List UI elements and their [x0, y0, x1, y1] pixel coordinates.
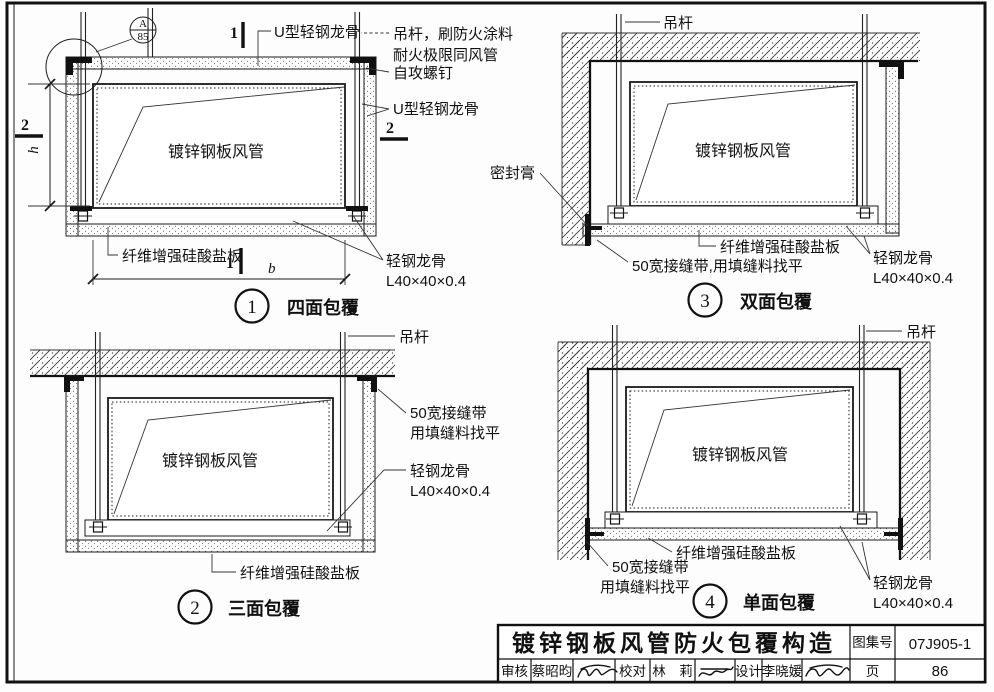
atlas-number-value: 07J905-1: [909, 636, 972, 653]
caption-text: 双面包覆: [740, 291, 813, 312]
label-sealant: 密封膏: [490, 165, 535, 182]
page-label: 页: [866, 664, 880, 679]
caption-number: 3: [700, 291, 710, 312]
sheet-svg: A 85 1 1 2 2 h b: [0, 0, 994, 692]
label-tape-line2: 用填缝料找平: [410, 425, 500, 442]
label-keel-line2: L40×40×0.4: [386, 273, 466, 290]
dimension-h: h: [26, 79, 90, 211]
drawing-sheet: A 85 1 1 2 2 h b: [0, 0, 994, 692]
detail-3-two-side-covering: 吊杆 密封膏 镀锌钢板风管 纤维增强硅酸盐板 50宽接缝带,用填缝料找平 轻钢龙…: [490, 14, 953, 317]
section-mark-2-right: 2: [386, 120, 394, 137]
label-duct: 镀锌钢板风管: [695, 142, 791, 160]
label-hanger: 吊杆: [906, 324, 936, 341]
section-mark-1-top: 1: [230, 25, 238, 42]
caption-number: 1: [247, 297, 257, 318]
section-mark-2-left: 2: [21, 117, 29, 134]
label-duct: 镀锌钢板风管: [162, 452, 258, 470]
label-board: 纤维增强硅酸盐板: [122, 247, 242, 265]
label-top-keel: U型轻钢龙骨: [274, 24, 360, 41]
label-tape-line2: 用填缝料找平: [600, 579, 690, 596]
caption: 4 单面包覆: [694, 585, 816, 618]
sheet-title: 镀锌钢板风管防火包覆构造: [512, 630, 836, 656]
design-label: 设计: [735, 664, 762, 679]
label-keel-line1: 轻钢龙骨: [386, 253, 446, 270]
caption-text: 单面包覆: [743, 592, 816, 613]
dim-b-label: b: [268, 261, 276, 277]
dim-h-label: h: [26, 146, 42, 154]
label-tape: 50宽接缝带,用填缝料找平: [632, 258, 803, 275]
page-number: 86: [932, 663, 949, 680]
label-keel-line2: L40×40×0.4: [873, 270, 953, 287]
label-tape-line1: 50宽接缝带: [612, 559, 689, 576]
label-duct: 镀锌钢板风管: [692, 446, 788, 464]
caption-number: 4: [705, 592, 715, 613]
proofreader-name: 林 莉: [652, 664, 693, 679]
label-board: 纤维增强硅酸盐板: [240, 564, 360, 582]
label-keel-line1: 轻钢龙骨: [410, 463, 470, 480]
label-keel-line1: 轻钢龙骨: [873, 575, 933, 592]
label-duct: 镀锌钢板风管: [168, 143, 264, 161]
keel-plate: [608, 206, 878, 224]
label-hanger: 吊杆: [663, 15, 693, 32]
callout-page: 85: [138, 31, 150, 43]
designer-name: 李晓媛: [762, 664, 803, 679]
label-hanger-line2: 耐火极限同风管: [393, 47, 498, 64]
detail-2-three-side-covering: 吊杆 50宽接缝带 用填缝料找平 轻钢龙骨 L40×40×0.4 镀锌钢板风管 …: [30, 329, 500, 624]
atlas-number-label: 图集号: [852, 635, 893, 650]
caption: 2 三面包覆: [179, 591, 301, 624]
title-block: 镀锌钢板风管防火包覆构造 图集号 07J905-1 审核 蔡昭昀 校对 林 莉 …: [498, 625, 985, 682]
caption: 1 四面包覆: [236, 290, 360, 323]
caption-text: 三面包覆: [228, 598, 301, 619]
label-keel-line1: 轻钢龙骨: [873, 250, 933, 267]
label-screw: 自攻螺钉: [393, 65, 453, 82]
label-hanger-line1: 吊杆，刷防火涂料: [393, 26, 513, 43]
label-keel-line2: L40×40×0.4: [410, 483, 490, 500]
detail-1-four-side-covering: A 85 1 1 2 2 h b: [15, 8, 513, 323]
callout-letter: A: [139, 18, 147, 30]
keel-plate: [605, 512, 877, 528]
label-board: 纤维增强硅酸盐板: [720, 238, 840, 256]
detail-4-one-side-covering: 吊杆 镀锌钢板风管 纤维增强硅酸盐板 50宽接缝带 用填缝料找平 轻钢龙骨 L4…: [558, 324, 953, 618]
label-tape-line1: 50宽接缝带: [410, 405, 487, 422]
label-side-keel: U型轻钢龙骨: [393, 101, 479, 118]
review-label: 审核: [501, 664, 528, 679]
caption-text: 四面包覆: [287, 297, 360, 318]
caption-number: 2: [190, 598, 200, 619]
label-keel-line2: L40×40×0.4: [873, 595, 953, 612]
reviewer-name: 蔡昭昀: [532, 664, 573, 679]
label-board: 纤维增强硅酸盐板: [676, 544, 796, 562]
keel-plate: [85, 520, 352, 536]
caption: 3 双面包覆: [689, 284, 813, 317]
proofread-label: 校对: [619, 663, 646, 679]
label-hanger: 吊杆: [399, 329, 429, 346]
